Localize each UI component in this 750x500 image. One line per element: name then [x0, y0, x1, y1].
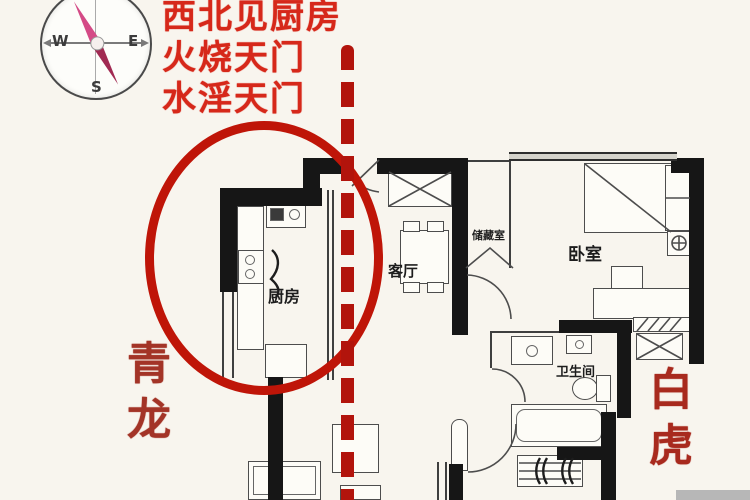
living-shaft-xbox — [388, 171, 452, 207]
wall-bathroom-right — [617, 320, 631, 418]
white-tiger-label: 白虎 — [644, 366, 688, 478]
azure-dragon-label: 青龙 — [122, 340, 166, 452]
watermark-strip — [676, 490, 750, 500]
hall-cabinet-upper — [332, 424, 379, 473]
toilet-tank — [596, 375, 611, 402]
entry-door-arc — [468, 424, 516, 472]
bedroom-window-band — [509, 152, 677, 161]
compass-north-label: N — [90, 0, 103, 4]
wall-living-right — [452, 158, 468, 335]
compass-west-label: W — [52, 32, 69, 50]
room-label-bathroom: 卫生间 — [556, 361, 595, 380]
wall-bathroom-stub — [557, 447, 605, 460]
partition-storage-bedroom — [509, 160, 511, 268]
dining-chair-3 — [403, 282, 420, 293]
room-label-living: 客厅 — [388, 260, 418, 281]
storage-zigzag-door — [466, 248, 513, 268]
wall-entry-bottom — [449, 464, 463, 500]
partition-entry-frame — [437, 462, 447, 500]
dining-chair-1 — [403, 221, 420, 232]
compass-east-arrow-icon — [141, 39, 149, 47]
wardrobe-inner — [253, 466, 316, 495]
compass-east-label: E — [128, 32, 138, 50]
bed-icon — [584, 163, 672, 233]
dining-chair-4 — [427, 282, 444, 293]
bedroom-door-arc — [467, 275, 511, 319]
toilet-bowl-icon — [572, 377, 598, 400]
partition-bathroom-left — [490, 333, 492, 368]
bathroom-sink-icon — [566, 335, 592, 354]
washer-icon — [511, 336, 553, 365]
compass-south-label: S — [91, 78, 102, 96]
center-dividing-dashed-line — [341, 45, 354, 500]
compass-west-arrow-icon — [43, 39, 51, 47]
wall-lower-left — [268, 377, 283, 500]
compass-rose: N S W E — [40, 0, 152, 100]
bedroom-chair — [611, 266, 643, 289]
room-label-bedroom: 卧室 — [568, 240, 602, 265]
warning-line-3: 水淫天门 — [162, 82, 306, 116]
washer-door — [526, 345, 538, 357]
sink-basin — [575, 340, 584, 349]
lower-wardrobe — [248, 461, 321, 500]
bedroom-desk — [593, 288, 690, 319]
partition-bedroom-bottom — [490, 331, 560, 333]
wall-outer-right — [689, 158, 704, 364]
bathroom-door-arc — [492, 369, 525, 402]
warning-line-1: 西北见厨房 — [162, 0, 342, 34]
bathtub-icon — [511, 404, 607, 447]
room-label-storage: 储藏室 — [472, 227, 505, 243]
balcony-hatch-band — [633, 317, 690, 332]
ac-platform-xbox — [636, 333, 683, 360]
bathtub-basin — [516, 409, 602, 442]
partition-top-gap — [467, 160, 510, 162]
dining-chair-2 — [427, 221, 444, 232]
bed-pillow — [665, 165, 690, 231]
warning-line-2: 火烧天门 — [162, 41, 306, 75]
